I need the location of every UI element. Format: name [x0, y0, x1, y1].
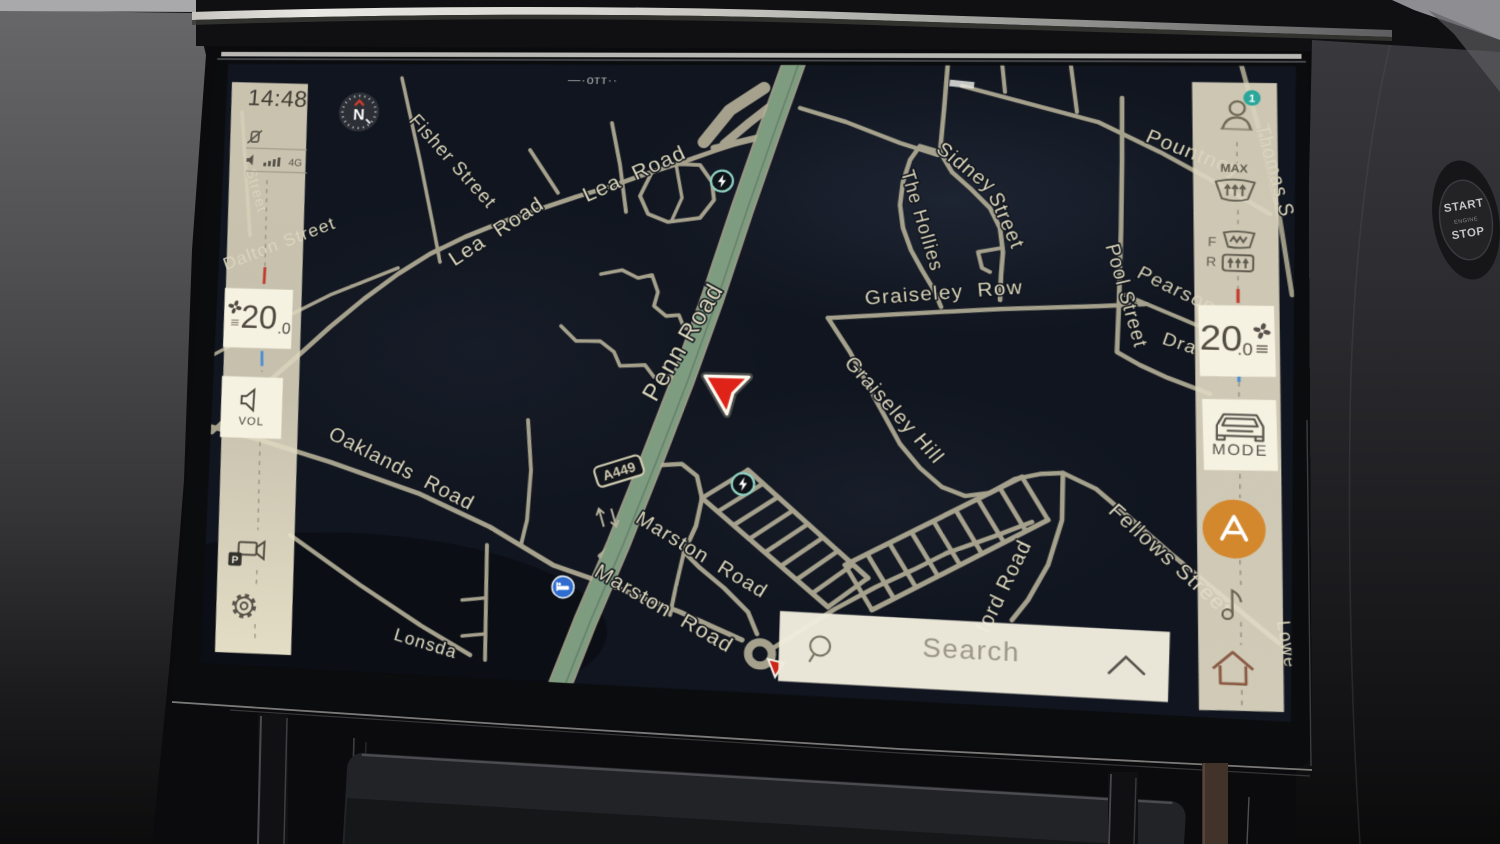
svg-text:MODE: MODE [1212, 440, 1268, 459]
svg-text:14:48: 14:48 [247, 85, 309, 112]
svg-text:.0: .0 [277, 320, 292, 338]
svg-text:20: 20 [1199, 318, 1242, 359]
svg-text:1: 1 [1248, 93, 1256, 105]
svg-text:N: N [353, 106, 365, 123]
svg-text:P: P [231, 555, 239, 567]
svg-text:F: F [1208, 236, 1217, 250]
svg-text:Search: Search [922, 632, 1020, 667]
svg-text:MAX: MAX [1220, 163, 1248, 176]
svg-text:.0: .0 [1237, 340, 1253, 360]
svg-text:20: 20 [240, 298, 279, 336]
svg-text:4G: 4G [288, 158, 303, 170]
svg-text:VOL: VOL [238, 415, 264, 429]
svg-text:R: R [1206, 256, 1216, 270]
svg-text:—·отт··: —·отт·· [568, 75, 619, 88]
